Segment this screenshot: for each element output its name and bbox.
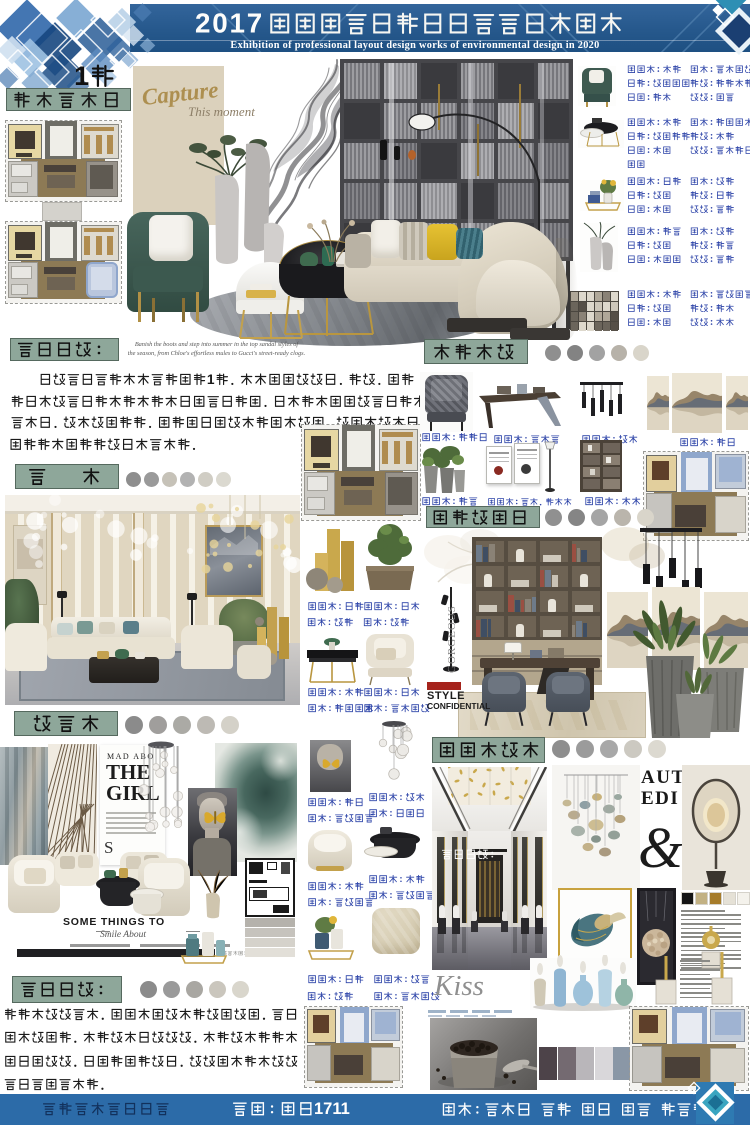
svg-text:7: 7 (247, 8, 262, 39)
svg-text:2: 2 (195, 8, 210, 39)
svg-text:1: 1 (74, 61, 89, 91)
svg-text:1: 1 (207, 372, 215, 387)
svg-text:1: 1 (229, 8, 244, 39)
svg-text:0: 0 (212, 8, 227, 39)
